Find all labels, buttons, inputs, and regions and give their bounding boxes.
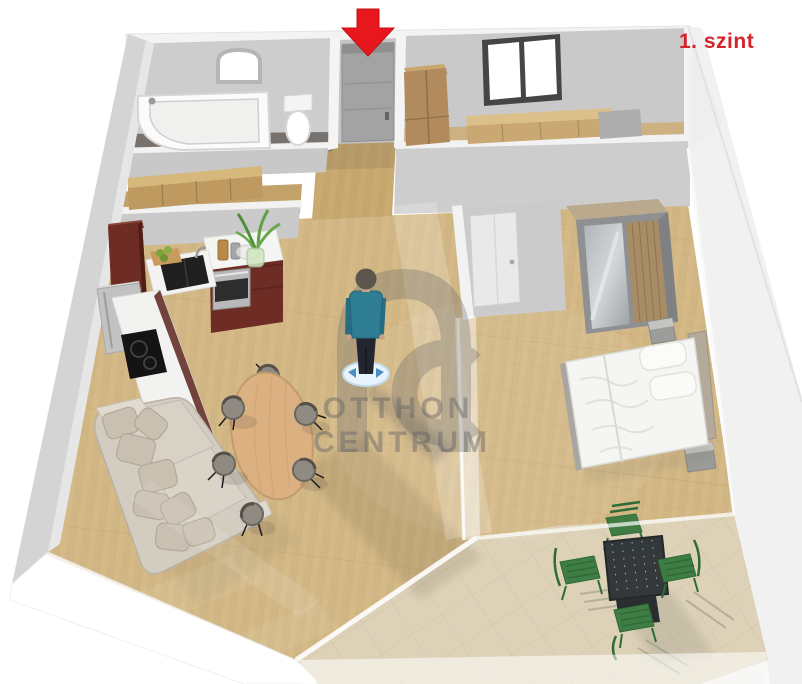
- bathtub-basin: [150, 99, 259, 144]
- wall-strip-bath-hall: [328, 38, 340, 150]
- entrance: [342, 42, 394, 142]
- apple: [160, 254, 168, 262]
- entrance-door-handle: [385, 112, 389, 120]
- floor-label: 1. szint: [679, 30, 754, 53]
- room-gray-unit: [598, 109, 642, 139]
- apple: [164, 246, 172, 254]
- plant-vase: [247, 248, 264, 267]
- person-hand: [379, 334, 385, 340]
- person-hand: [346, 334, 352, 340]
- toilet-bowl: [286, 111, 310, 145]
- kitchen-oven-window: [215, 278, 248, 302]
- double-window-pane-right: [524, 39, 557, 97]
- floorplan-canvas: OTTHON CENTRUM 1. szint: [0, 0, 802, 684]
- person-head: [356, 269, 377, 290]
- terrace-table-top: [604, 536, 668, 600]
- toilet-tank: [284, 94, 312, 112]
- bedroom-door-handle: [510, 260, 515, 265]
- floorplan-image: OTTHON CENTRUM 1. szint: [0, 0, 802, 684]
- kitchen-jar: [218, 240, 228, 260]
- bathroom-window: [218, 50, 260, 82]
- double-window-pane-left: [488, 42, 521, 100]
- person-torso: [350, 291, 383, 338]
- wall-strip-hall-room: [394, 36, 406, 148]
- entrance-door: [342, 44, 394, 142]
- bathtub-faucet: [149, 98, 156, 105]
